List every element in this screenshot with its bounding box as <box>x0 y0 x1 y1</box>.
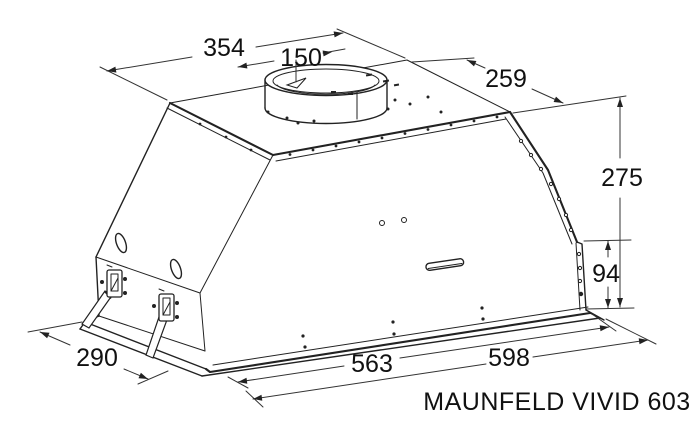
left-panel <box>96 103 273 351</box>
dim-top-depth-label: 259 <box>485 65 527 93</box>
dim-front-lower-height: 94 <box>584 240 631 308</box>
technical-drawing-page: 354 150 259 275 <box>0 0 700 443</box>
duct-collar <box>265 65 399 124</box>
dim-top-depth: 259 <box>412 58 626 113</box>
dim-front-lower-height-label: 94 <box>592 260 620 288</box>
dim-body-width: 563 <box>228 314 616 388</box>
hood-dimension-drawing: 354 150 259 275 <box>0 0 700 443</box>
front-panel <box>301 218 484 349</box>
dim-top-width-label: 354 <box>203 34 245 62</box>
dim-base-width-label: 598 <box>488 344 530 372</box>
dim-total-height-label: 275 <box>601 164 643 192</box>
right-panel <box>505 112 586 310</box>
model-name: MAUNFELD VIVID 603 <box>423 388 690 416</box>
dim-body-width-label: 563 <box>351 350 393 378</box>
handle-slot <box>425 258 464 271</box>
dim-base-depth-label: 290 <box>76 344 118 372</box>
dim-duct-diameter-label: 150 <box>280 44 322 72</box>
